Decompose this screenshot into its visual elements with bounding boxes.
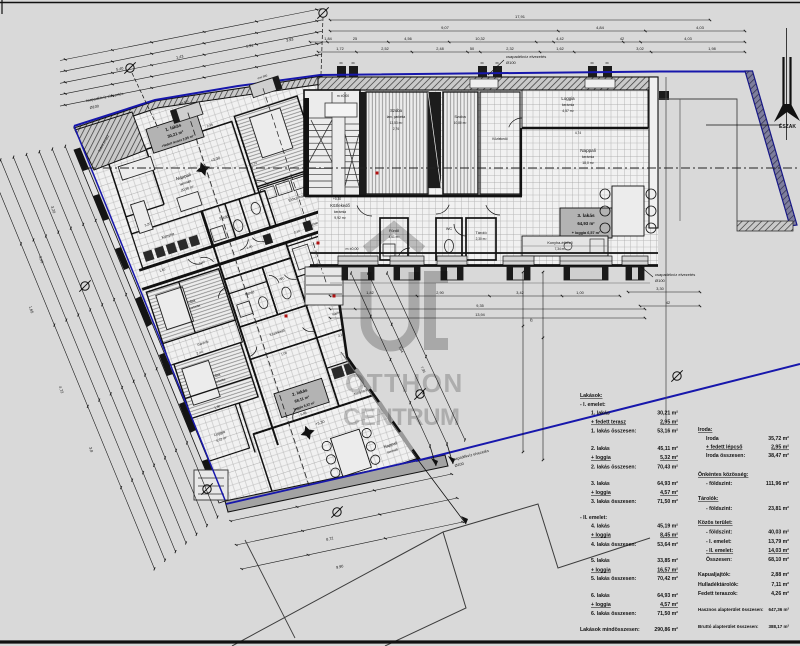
svg-text:5. lakás: 5. lakás: [591, 558, 610, 564]
svg-text:- földszint:: - földszint:: [706, 481, 732, 487]
svg-text:Ø100: Ø100: [655, 278, 666, 283]
svg-text:45,19 m²: 45,19 m²: [657, 524, 678, 530]
svg-text:14,03 m²: 14,03 m²: [768, 548, 789, 554]
svg-text:71,50 m²: 71,50 m²: [657, 611, 678, 617]
svg-text:WC: WC: [446, 227, 453, 231]
svg-text:1. lakás összesen:: 1. lakás összesen:: [591, 429, 637, 435]
svg-text:lam. parketta: lam. parketta: [387, 115, 406, 119]
svg-text:6. lakás összesen:: 6. lakás összesen:: [591, 611, 637, 617]
svg-text:45,11 m²: 45,11 m²: [658, 446, 679, 452]
svg-text:- földszint:: - földszint:: [706, 506, 732, 512]
svg-text:9,92 m²: 9,92 m²: [334, 216, 346, 220]
svg-text:3. lakás: 3. lakás: [577, 213, 595, 219]
svg-text:3,02: 3,02: [636, 47, 643, 51]
svg-text:13,94: 13,94: [475, 313, 485, 317]
svg-text:- II. emelet:: - II. emelet:: [706, 548, 733, 554]
svg-text:9,35: 9,35: [476, 304, 483, 308]
svg-text:647,36 m²: 647,36 m²: [768, 607, 789, 612]
svg-text:33,85 m²: 33,85 m²: [657, 558, 678, 564]
svg-text:+ loggia: + loggia: [591, 602, 611, 608]
svg-text:50: 50: [470, 47, 474, 51]
svg-text:- I. emelet:: - I. emelet:: [580, 402, 606, 408]
svg-text:2,90: 2,90: [436, 291, 443, 295]
svg-text:5. lakás összesen:: 5. lakás összesen:: [591, 576, 637, 582]
svg-text:42: 42: [666, 301, 670, 305]
svg-text:2,48: 2,48: [436, 47, 443, 51]
svg-text:1. lakás: 1. lakás: [591, 411, 610, 417]
svg-text:- földszint:: - földszint:: [706, 530, 732, 536]
svg-text:Tárolók:: Tárolók:: [698, 496, 719, 502]
svg-text:5,32 m²: 5,32 m²: [660, 455, 678, 461]
svg-text:+ fedett lépcső: + fedett lépcső: [706, 445, 742, 451]
svg-text:kerámia: kerámia: [582, 155, 594, 159]
svg-text:Bruttó alapterület összesen:: Bruttó alapterület összesen:: [698, 624, 759, 629]
svg-text:3,30: 3,30: [656, 287, 663, 291]
svg-text:53,16 m²: 53,16 m²: [657, 429, 678, 435]
svg-text:42: 42: [529, 318, 533, 322]
svg-text:25: 25: [353, 37, 357, 41]
svg-text:+ fedett terasz: + fedett terasz: [591, 420, 626, 426]
svg-text:10,80 m²: 10,80 m²: [454, 121, 467, 125]
svg-text:Hulladéktárolók:: Hulladéktárolók:: [698, 582, 739, 588]
svg-text:64,93 m²: 64,93 m²: [657, 593, 678, 599]
svg-text:35,72 m²: 35,72 m²: [768, 436, 789, 442]
svg-text:Közlekedő: Közlekedő: [492, 137, 508, 141]
svg-text:csapadékvíz elvezetés: csapadékvíz elvezetés: [655, 272, 695, 277]
svg-text:40,03 m²: 40,03 m²: [768, 530, 789, 536]
svg-text:Iroda összesen:: Iroda összesen:: [706, 453, 745, 459]
svg-text:9,07: 9,07: [441, 25, 450, 30]
svg-text:7,34 m²: 7,34 m²: [555, 247, 566, 251]
svg-text:53,64 m²: 53,64 m²: [657, 542, 678, 548]
svg-text:+ loggia: + loggia: [591, 568, 611, 574]
svg-text:8,45 m²: 8,45 m²: [660, 533, 678, 539]
svg-text:2,95 m²: 2,95 m²: [660, 420, 678, 426]
svg-text:111,96 m²: 111,96 m²: [766, 481, 789, 487]
svg-text:4,84: 4,84: [596, 25, 605, 30]
svg-text:- I. emelet:: - I. emelet:: [706, 539, 732, 545]
svg-text:4,56: 4,56: [404, 37, 411, 41]
svg-text:30,21 m²: 30,21 m²: [657, 411, 678, 417]
svg-text:64,93 m²: 64,93 m²: [657, 481, 678, 487]
svg-text:70,42 m²: 70,42 m²: [657, 576, 678, 582]
svg-text:Közlekedő: Közlekedő: [330, 203, 350, 208]
svg-text:2. lakás összesen:: 2. lakás összesen:: [591, 465, 637, 471]
svg-text:Tároló: Tároló: [475, 230, 487, 235]
svg-text:+ loggia: + loggia: [591, 455, 611, 461]
svg-text:13,79 m²: 13,79 m²: [768, 539, 789, 545]
svg-text:1,00: 1,00: [576, 291, 583, 295]
svg-text:69: 69: [495, 61, 499, 65]
svg-text:69: 69: [339, 61, 343, 65]
svg-text:Lakások:: Lakások:: [580, 393, 603, 399]
svg-text:4,03: 4,03: [684, 37, 691, 41]
svg-text:2,95 m²: 2,95 m²: [771, 445, 789, 451]
svg-text:69: 69: [590, 61, 594, 65]
svg-text:Lakások mindösszesen:: Lakások mindösszesen:: [580, 627, 640, 633]
svg-text:2,88 m²: 2,88 m²: [771, 572, 789, 578]
svg-text:3,42: 3,42: [516, 291, 523, 295]
svg-text:4,42: 4,42: [556, 37, 563, 41]
svg-text:1,84: 1,84: [324, 37, 331, 41]
svg-text:+ loggia: + loggia: [591, 533, 611, 539]
svg-text:69: 69: [351, 61, 355, 65]
svg-text:290,86 m²: 290,86 m²: [654, 627, 678, 633]
svg-text:Iroda: Iroda: [706, 436, 719, 442]
svg-text:+0,30: +0,30: [333, 197, 341, 201]
svg-text:69: 69: [605, 61, 609, 65]
svg-text:1,98: 1,98: [708, 47, 715, 51]
svg-text:1,72: 1,72: [336, 47, 343, 51]
svg-text:2,30 m²: 2,30 m²: [476, 237, 487, 241]
svg-text:Konyha-étkező: Konyha-étkező: [547, 241, 572, 245]
svg-text:- II. emelet:: - II. emelet:: [580, 515, 607, 521]
svg-text:4,74: 4,74: [575, 131, 581, 135]
svg-text:6. lakás: 6. lakás: [591, 593, 610, 599]
svg-text:Összesen:: Összesen:: [706, 556, 732, 563]
svg-text:70,43 m²: 70,43 m²: [657, 465, 678, 471]
svg-text:Kapualjajtók:: Kapualjajtók:: [698, 572, 731, 578]
svg-text:kerámia: kerámia: [334, 210, 346, 214]
svg-text:CENTRUM: CENTRUM: [343, 404, 460, 431]
svg-text:69: 69: [480, 61, 484, 65]
svg-text:+ loggia: + loggia: [591, 490, 611, 496]
svg-text:4,57 m²: 4,57 m²: [660, 602, 678, 608]
svg-text:Szoba: Szoba: [390, 108, 403, 113]
svg-text:4,57 m²: 4,57 m²: [562, 109, 574, 113]
svg-text:13,53 m²: 13,53 m²: [390, 121, 403, 125]
svg-text:3. lakás összesen:: 3. lakás összesen:: [591, 499, 637, 505]
svg-text:71,50 m²: 71,50 m²: [657, 499, 678, 505]
svg-text:4,57 m²: 4,57 m²: [660, 490, 678, 496]
svg-text:kerámia: kerámia: [562, 103, 574, 107]
svg-text:2,32: 2,32: [506, 47, 513, 51]
svg-text:Loggia: Loggia: [561, 96, 575, 101]
svg-text:7,11 m²: 7,11 m²: [771, 582, 789, 588]
svg-text:OTTHON: OTTHON: [345, 368, 464, 398]
svg-text:Önkéntes közösség:: Önkéntes közösség:: [698, 471, 749, 478]
svg-text:68,10 m²: 68,10 m²: [768, 557, 789, 563]
svg-text:4. lakás összesen:: 4. lakás összesen:: [591, 542, 637, 548]
svg-text:18,0 m²: 18,0 m²: [582, 161, 594, 165]
svg-text:Közös terület:: Közös terület:: [698, 520, 733, 526]
svg-text:38,47 m²: 38,47 m²: [768, 453, 789, 459]
svg-text:388,17 m²: 388,17 m²: [768, 624, 789, 629]
svg-text:ÉSZAK: ÉSZAK: [779, 122, 796, 130]
svg-text:64,93 m²: 64,93 m²: [577, 221, 595, 226]
svg-text:4. lakás: 4. lakás: [591, 524, 610, 530]
svg-text:2,76: 2,76: [393, 127, 399, 131]
svg-text:m ±0,00: m ±0,00: [346, 247, 359, 251]
svg-text:Szoba: Szoba: [454, 114, 466, 119]
svg-text:Hasznos alapterület összesen:: Hasznos alapterület összesen:: [698, 607, 764, 612]
svg-text:Nappali: Nappali: [580, 148, 596, 153]
svg-text:Ø100: Ø100: [506, 60, 517, 65]
svg-text:10,32: 10,32: [475, 37, 485, 41]
svg-text:Fedett teraszok:: Fedett teraszok:: [698, 591, 738, 597]
svg-text:m ±0,00: m ±0,00: [337, 94, 349, 98]
svg-text:16,57 m²: 16,57 m²: [657, 568, 678, 574]
svg-text:3. lakás: 3. lakás: [591, 481, 610, 487]
svg-text:4,03: 4,03: [696, 25, 705, 30]
svg-text:csapadékvíz elvezetés: csapadékvíz elvezetés: [506, 54, 546, 59]
svg-text:23,81 m²: 23,81 m²: [768, 506, 789, 512]
svg-text:+ loggia 6,57 m²: + loggia 6,57 m²: [572, 231, 601, 235]
svg-text:2,52: 2,52: [381, 47, 388, 51]
svg-text:2. lakás: 2. lakás: [591, 446, 610, 452]
svg-text:1,62: 1,62: [556, 47, 563, 51]
svg-text:17,91: 17,91: [515, 14, 526, 19]
svg-text:4,26 m²: 4,26 m²: [771, 591, 789, 597]
svg-text:Iroda:: Iroda:: [698, 427, 713, 433]
svg-text:42: 42: [620, 37, 624, 41]
